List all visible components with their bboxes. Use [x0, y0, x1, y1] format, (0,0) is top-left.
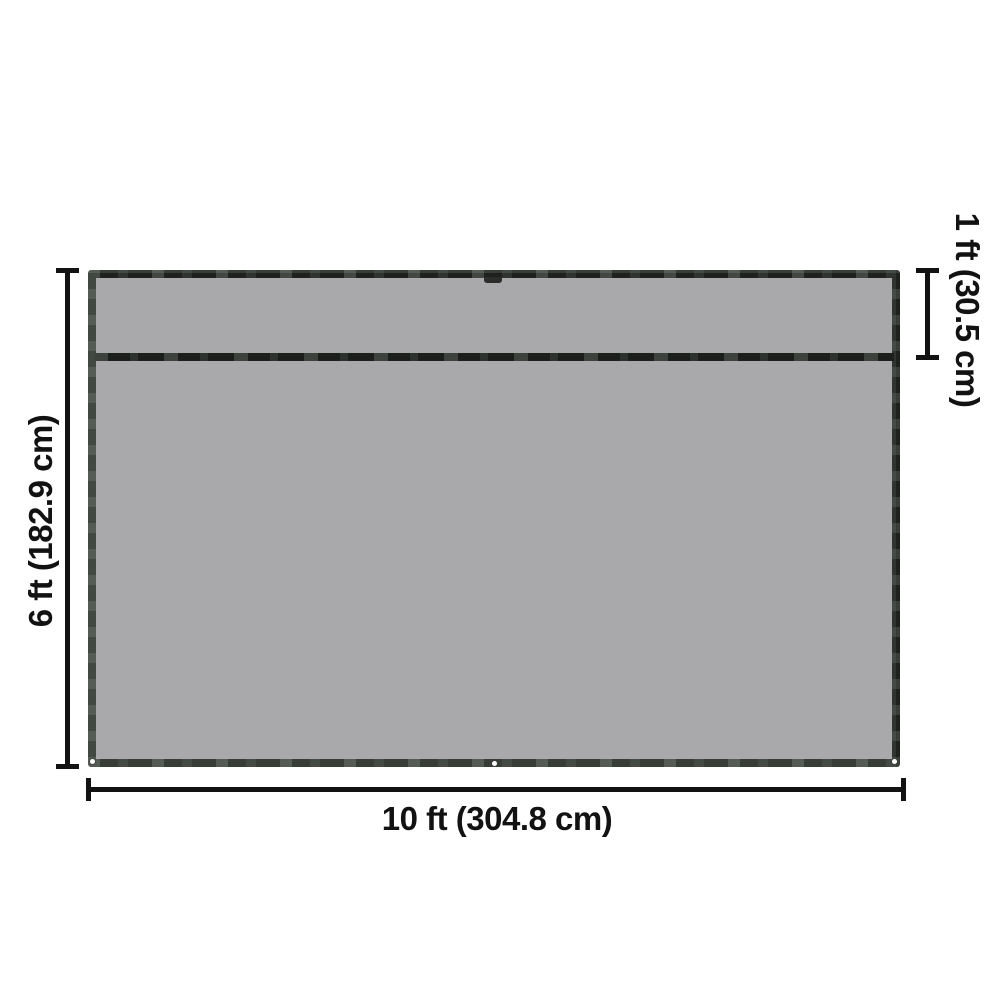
grommet-bottom-center: [492, 761, 497, 766]
height-dimension-label: 6 ft (182.9 cm): [22, 415, 60, 628]
grommet-bottom-left: [90, 759, 95, 764]
width-dimension-label: 10 ft (304.8 cm): [382, 800, 612, 838]
grommet-bottom-right: [892, 759, 897, 764]
tarp-outline: [88, 270, 900, 767]
tarp-fabric: [96, 278, 892, 759]
flap-dimension-label: 1 ft (30.5 cm): [948, 213, 986, 408]
flap-dimension-line: [925, 270, 930, 358]
dimension-diagram: 6 ft (182.9 cm) 10 ft (304.8 cm) 1 ft (3…: [0, 0, 1000, 1000]
width-dimension-line: [88, 787, 904, 792]
height-dimension-line: [65, 270, 70, 767]
top-center-tab: [484, 277, 502, 283]
flap-seam: [94, 353, 894, 361]
